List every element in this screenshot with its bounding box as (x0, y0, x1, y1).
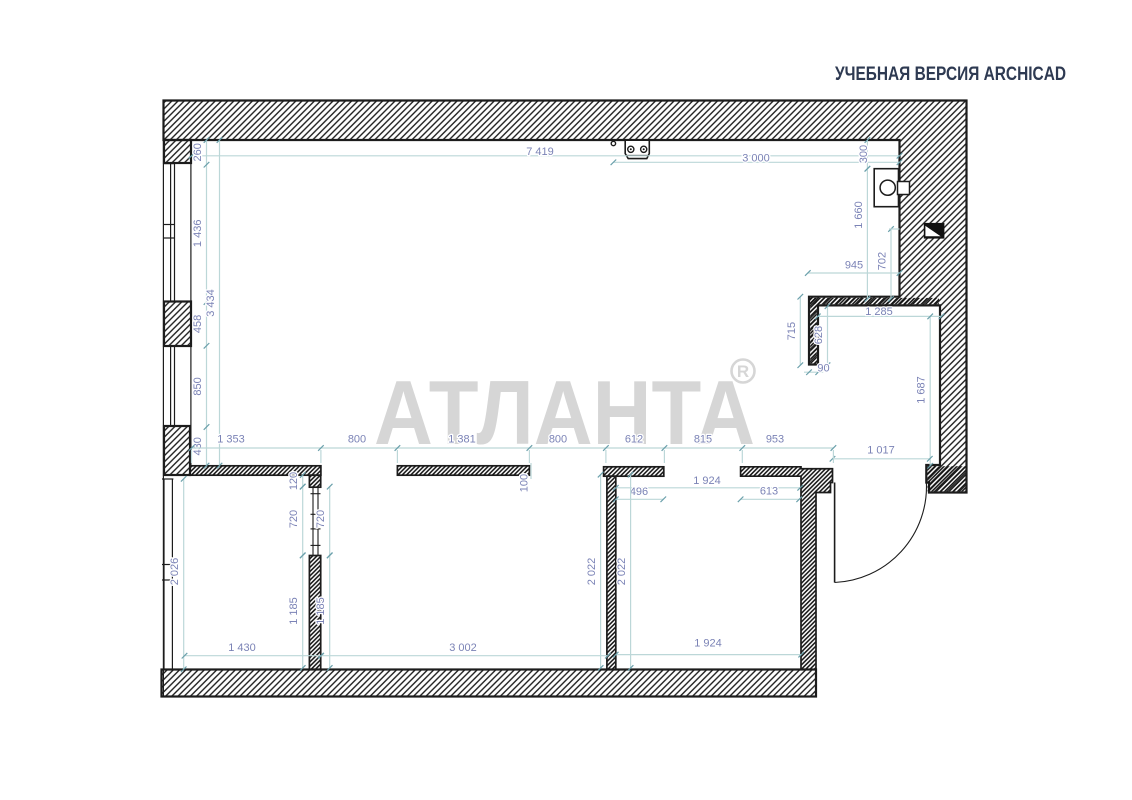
svg-text:800: 800 (348, 434, 366, 446)
svg-text:720: 720 (288, 510, 300, 528)
svg-text:850: 850 (192, 377, 204, 395)
svg-text:800: 800 (549, 434, 567, 446)
svg-text:1 381: 1 381 (448, 434, 476, 446)
svg-text:2 022: 2 022 (616, 558, 628, 586)
svg-text:2 022: 2 022 (586, 558, 598, 586)
svg-text:458: 458 (192, 315, 204, 333)
svg-text:90: 90 (817, 363, 829, 375)
svg-text:953: 953 (766, 434, 784, 446)
svg-text:R: R (737, 362, 749, 381)
svg-text:7 419: 7 419 (526, 146, 554, 158)
svg-text:1 660: 1 660 (853, 201, 865, 229)
svg-text:720: 720 (315, 510, 327, 528)
svg-text:1 436: 1 436 (192, 220, 204, 248)
svg-text:628: 628 (813, 326, 825, 344)
svg-text:1 185: 1 185 (315, 597, 327, 625)
svg-text:3 434: 3 434 (205, 289, 217, 317)
svg-text:1 687: 1 687 (916, 376, 928, 404)
svg-text:300: 300 (858, 145, 870, 163)
svg-text:945: 945 (845, 260, 863, 272)
svg-text:715: 715 (786, 322, 798, 340)
svg-text:АТЛАНТА: АТЛАНТА (374, 363, 755, 464)
svg-text:2 026: 2 026 (169, 558, 181, 586)
svg-text:1 353: 1 353 (217, 434, 245, 446)
svg-text:1 430: 1 430 (228, 642, 256, 654)
svg-text:612: 612 (625, 434, 643, 446)
svg-text:496: 496 (630, 486, 648, 498)
svg-text:1 924: 1 924 (693, 475, 721, 487)
svg-text:120: 120 (288, 472, 300, 490)
svg-text:УЧЕБНАЯ ВЕРСИЯ ARCHICAD: УЧЕБНАЯ ВЕРСИЯ ARCHICAD (835, 64, 1066, 85)
svg-text:100: 100 (519, 474, 531, 492)
svg-text:3 002: 3 002 (449, 642, 477, 654)
svg-text:1 185: 1 185 (288, 597, 300, 625)
svg-text:3 000: 3 000 (742, 152, 770, 164)
svg-text:260: 260 (192, 143, 204, 161)
svg-text:815: 815 (694, 434, 712, 446)
svg-text:1 285: 1 285 (865, 306, 893, 318)
svg-text:702: 702 (877, 252, 889, 270)
svg-text:613: 613 (760, 485, 778, 497)
svg-text:1 924: 1 924 (694, 638, 722, 650)
svg-text:1 017: 1 017 (867, 445, 895, 457)
